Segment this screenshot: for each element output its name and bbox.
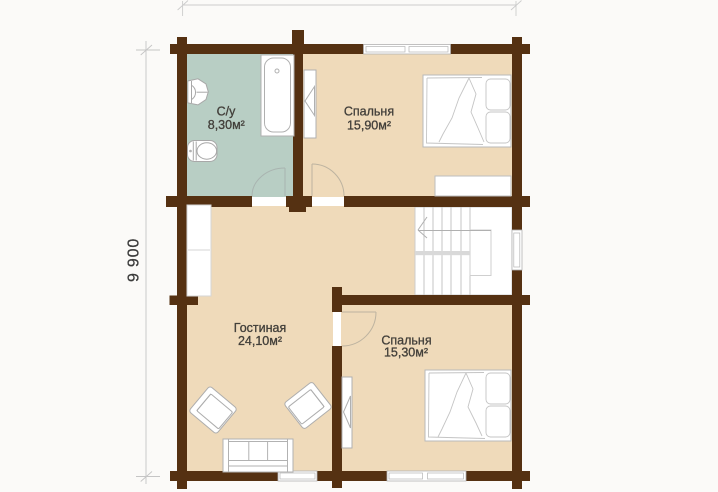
svg-text:Спальня: Спальня [344,105,394,119]
svg-text:С/у: С/у [217,105,237,119]
svg-text:24,10м²: 24,10м² [238,334,282,348]
svg-text:Гостиная: Гостиная [234,321,286,335]
svg-text:15,30м²: 15,30м² [384,346,428,360]
svg-text:9 900: 9 900 [126,238,143,282]
svg-text:8,30м²: 8,30м² [208,118,245,132]
svg-text:15,90м²: 15,90м² [347,119,391,133]
